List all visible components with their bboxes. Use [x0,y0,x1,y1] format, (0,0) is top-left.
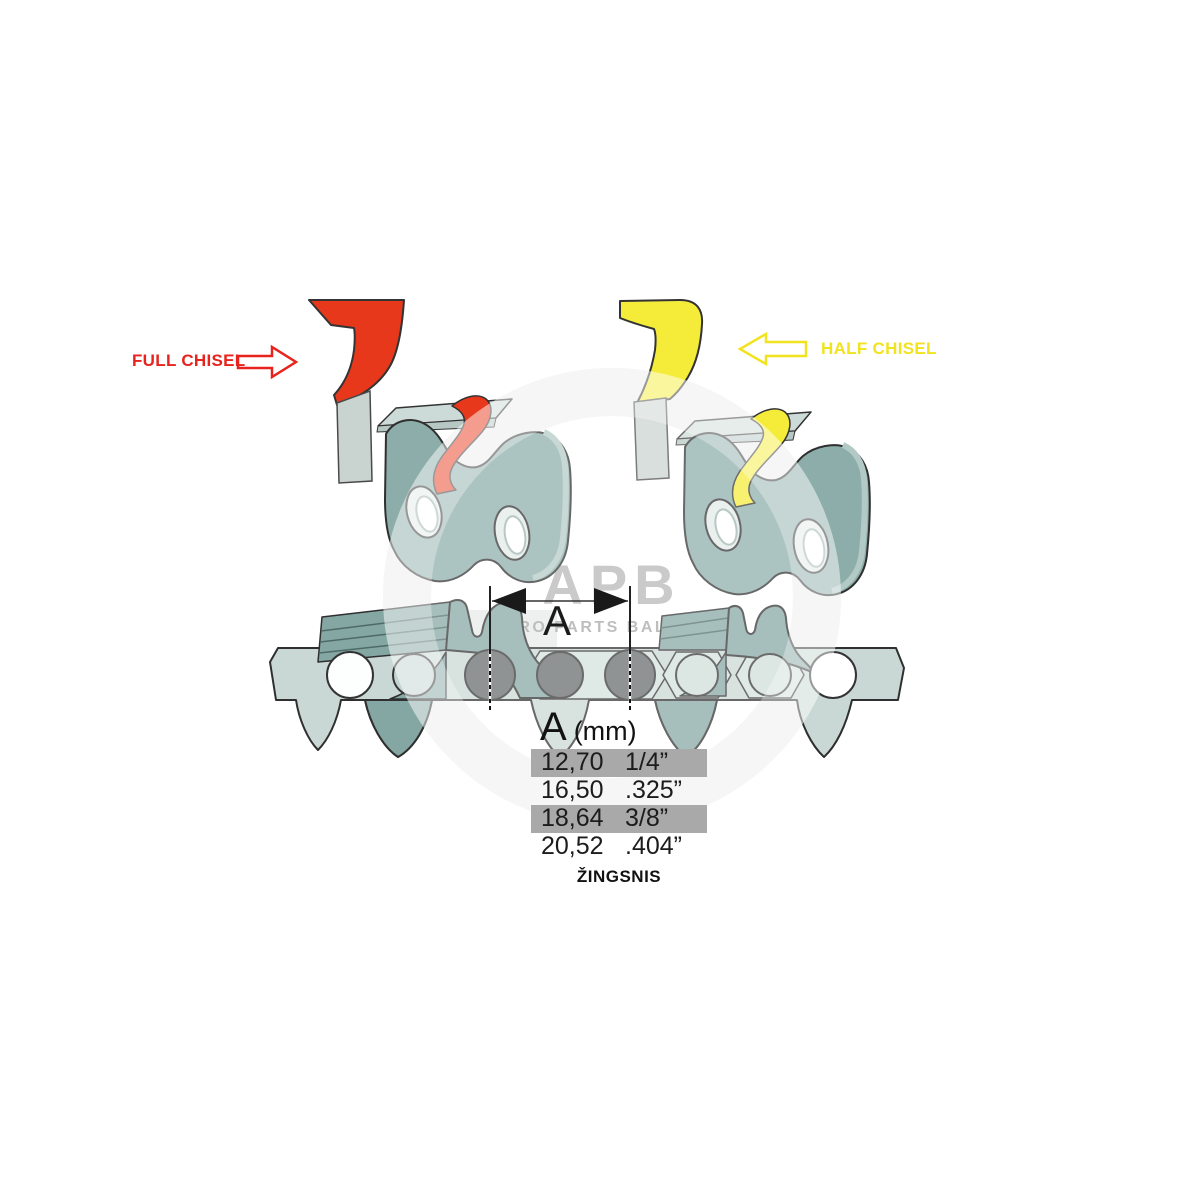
pitch-inch-value: 1/4” [625,749,707,777]
diagram-artwork: APB AGRO PARTS BALTIJA [0,0,1188,1188]
pitch-mm-value: 12,70 [541,749,625,777]
pitch-header-unit: (mm) [574,716,637,747]
pitch-table-header: A (mm) [540,705,637,750]
half-chisel-arrow-icon [740,334,806,364]
pitch-table: 12,70 1/4” 16,50 .325” 18,64 3/8” 20,52 … [531,749,707,861]
full-chisel-arrow-icon [238,347,296,377]
pitch-table-row: 16,50 .325” [531,777,707,805]
half-chisel-label: HALF CHISEL [821,339,937,359]
pitch-inch-value: .404” [625,833,707,861]
chain-pitch-diagram: APB AGRO PARTS BALTIJA [0,0,1188,1188]
pitch-mm-value: 20,52 [541,833,625,861]
pitch-table-row: 20,52 .404” [531,833,707,861]
pitch-table-row: 18,64 3/8” [531,805,707,833]
pitch-caption: ŽINGSNIS [531,867,707,887]
pitch-mm-value: 18,64 [541,805,625,833]
pitch-inch-value: .325” [625,777,707,805]
pitch-inch-value: 3/8” [625,805,707,833]
pitch-table-row: 12,70 1/4” [531,749,707,777]
full-chisel-profile [309,300,404,405]
full-chisel-label: FULL CHISEL [132,351,246,371]
pitch-mm-value: 16,50 [541,777,625,805]
pitch-header-letter: A [540,705,567,750]
dimension-letter: A [543,597,571,645]
full-chisel-shank [337,391,372,483]
